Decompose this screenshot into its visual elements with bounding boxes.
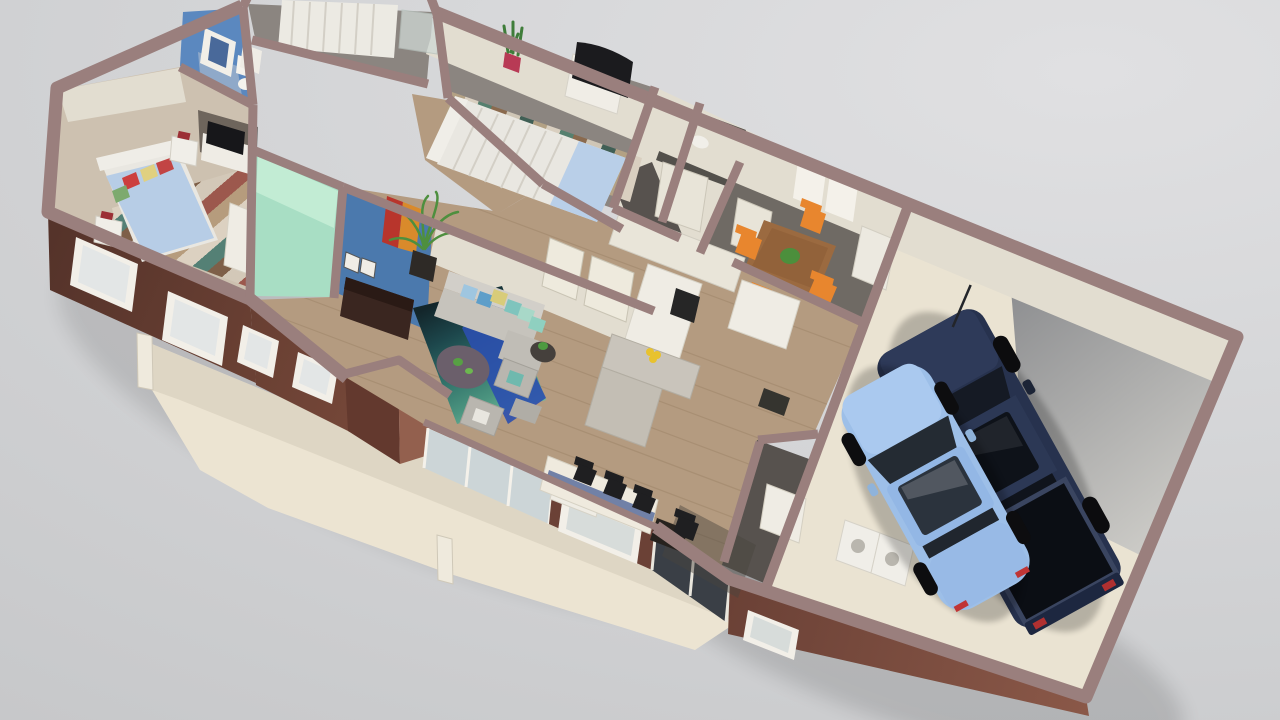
washer-door [851, 539, 865, 553]
table-plant-green [453, 358, 463, 366]
wall-master-right [250, 105, 253, 298]
floorplan-scene [0, 0, 1280, 720]
table-cup-green [465, 368, 473, 374]
render-canvas [0, 0, 1280, 720]
wall-laundry-top [758, 434, 818, 440]
porch-post [437, 535, 453, 584]
mint-room [250, 152, 341, 297]
centerpiece-plant [780, 248, 800, 264]
porch-post [137, 333, 153, 390]
side-table-plant [538, 342, 548, 350]
